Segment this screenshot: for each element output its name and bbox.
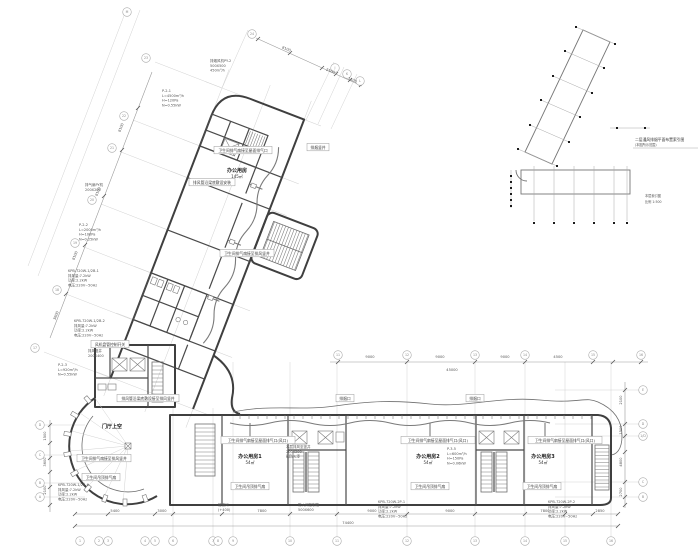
boxed-note: 卫生间吊顶排气扇 (523, 482, 561, 489)
svg-text:(+400): (+400) (218, 508, 231, 512)
boxed-note: 风机盘管控制开关 (91, 340, 129, 347)
core-1 (288, 431, 346, 492)
svg-text:145㎡: 145㎡ (231, 173, 243, 179)
svg-text:M: M (126, 10, 129, 14)
svg-text:5: 5 (154, 539, 156, 543)
svg-text:排风量:7.2kW: 排风量:7.2kW (68, 273, 91, 278)
svg-text:22: 22 (122, 114, 126, 118)
svg-text:KPB-720W-1/2B-2: KPB-720W-1/2B-2 (74, 319, 105, 323)
svg-text:N=0.55kW: N=0.55kW (162, 103, 181, 107)
svg-text:电压:220V~50Hz: 电压:220V~50Hz (74, 332, 103, 337)
svg-text:排风量:7.2kW: 排风量:7.2kW (548, 504, 571, 509)
grid-bubble: C (639, 478, 648, 487)
dimension-text: 4500 (553, 355, 563, 359)
svg-text:L=4500m³/h: L=4500m³/h (162, 94, 184, 98)
grid-bubble: 1 (76, 537, 85, 546)
svg-text:卫生间排气扇接至屋面排气口(风口): 卫生间排气扇接至屋面排气口(风口) (535, 438, 595, 443)
wing-top-core (200, 114, 268, 167)
equipment-label-stack: KPB-720W-1/2B-1排风量:7.2kW功率:2.2kW电压:220V~… (68, 269, 99, 287)
room-label: 办公用房145㎡ (227, 167, 247, 179)
svg-text:54㎡: 54㎡ (538, 459, 547, 465)
svg-text:卫生间吊顶排气扇: 卫生间吊顶排气扇 (235, 484, 266, 489)
grid-bubble: B (639, 493, 648, 502)
equipment-label-stack: P-2-1L=4500m³/hH=120PaN=0.55kW (162, 89, 184, 107)
connector-wall (213, 355, 240, 414)
dimension-text: 5400 (110, 509, 120, 513)
svg-text:电压:220V~50Hz: 电压:220V~50Hz (548, 513, 577, 518)
svg-text:10: 10 (288, 539, 292, 543)
dimension-text: 8100 (118, 122, 125, 133)
dimension-text: 2850 (595, 509, 605, 513)
svg-text:200X200: 200X200 (85, 188, 101, 192)
dimension-text: 4800 (619, 457, 623, 467)
svg-text:管道间: 管道间 (218, 502, 229, 507)
grid-bubble: 8 (214, 537, 223, 546)
svg-text:防火阀控制箱: 防火阀控制箱 (298, 502, 319, 507)
svg-text:15: 15 (591, 353, 595, 357)
equipment-label-stack: 本层排风至竖井200X200刷防火漆 (286, 444, 311, 459)
svg-text:排风量:7.2kW: 排风量:7.2kW (74, 323, 97, 328)
svg-text:54㎡: 54㎡ (423, 459, 432, 465)
svg-text:N=0.25kW: N=0.25kW (79, 237, 98, 241)
svg-text:排烟风机PY-2: 排烟风机PY-2 (210, 58, 231, 63)
svg-text:16: 16 (609, 539, 613, 543)
grid-bubble: 13 (471, 537, 480, 546)
svg-text:E: E (642, 388, 644, 392)
svg-text:排烟口: 排烟口 (339, 396, 351, 401)
boxed-note: 卫生间吊顶排气扇 (411, 482, 449, 489)
dimension-text: 2100 (43, 485, 47, 495)
boxed-note: 卫生间排气扇接至屋面排气口 (214, 146, 272, 153)
svg-text:11: 11 (335, 539, 339, 543)
grid-bubble: 13 (471, 351, 480, 360)
equipment-label-stack: P-3-5L=600m³/hH=150PaN=0.06kW (447, 447, 467, 465)
svg-text:卫生间吊顶排气扇: 卫生间吊顶排气扇 (86, 475, 117, 480)
equipment-label-stack: 管道间(+400) (218, 502, 231, 512)
key-plan: 二层通风排烟平面布置索引图 (本图所示范围) 本层索引图 比例 1:500 (510, 26, 698, 224)
svg-text:21: 21 (110, 146, 114, 150)
svg-text:卫生间排气扇接至排风竖井: 卫生间排气扇接至排风竖井 (81, 456, 127, 461)
dimension-text: 9000 (367, 509, 377, 513)
dimension-text: 3000 (157, 509, 167, 513)
svg-text:L=2000m³/h: L=2000m³/h (79, 228, 101, 232)
svg-text:排烟口: 排烟口 (469, 396, 481, 401)
svg-text:200X200: 200X200 (286, 450, 302, 454)
leader-stack-layer: 排烟风机PY-2500X500450m³/hP-2-1L=4500m³/hH=1… (58, 58, 577, 518)
dimension-text: 74400 (342, 521, 354, 525)
dimension-text: 9000 (365, 355, 375, 359)
svg-text:6: 6 (172, 539, 174, 543)
svg-text:功率:2.2kW: 功率:2.2kW (74, 328, 94, 333)
grid-bubble: 20 (88, 196, 97, 205)
svg-text:电压:220V~50Hz: 电压:220V~50Hz (68, 282, 97, 287)
room-label: 办公用房354㎡ (531, 453, 555, 465)
boxed-note: 卫生间排气扇接至排风竖井 (220, 249, 274, 256)
grid-bubble: E (639, 386, 648, 395)
svg-text:54㎡: 54㎡ (245, 459, 254, 465)
svg-text:卫生间排气扇接至屋面排气口(风口): 卫生间排气扇接至屋面排气口(风口) (228, 438, 288, 443)
room-label: 门厅上空 (102, 423, 122, 430)
svg-text:P-2-2: P-2-2 (79, 223, 88, 227)
grid-bubble: 15 (589, 351, 598, 360)
svg-text:15: 15 (563, 539, 567, 543)
svg-text:KPB-720W-1/2B-1: KPB-720W-1/2B-1 (68, 269, 99, 273)
grid-bubble: 23 (142, 54, 151, 63)
svg-text:本层排风至竖井: 本层排风至竖井 (286, 444, 311, 449)
wing-mid-core (133, 273, 207, 341)
svg-text:风机盘管控制开关: 风机盘管控制开关 (95, 342, 126, 347)
equipment-label-stack: 排风竖井200X400 (88, 348, 104, 358)
grid-bubble: 6 (169, 537, 178, 546)
grid-bubble: 16 (637, 351, 646, 360)
svg-text:KPB-720W-2P-1: KPB-720W-2P-1 (378, 500, 405, 504)
boxed-note: 排烟竖井 (307, 143, 329, 150)
svg-text:卫生间吊顶排气扇: 卫生间吊顶排气扇 (415, 484, 446, 489)
dimension-text: 2100 (619, 395, 623, 405)
equipment-label-stack: 排烟风机PY-2500X500450m³/h (210, 58, 231, 73)
svg-text:卫生间排气扇接至屋面排气口(风口): 卫生间排气扇接至屋面排气口(风口) (408, 438, 468, 443)
core-2 (476, 431, 524, 492)
svg-text:卫生间排气扇接至排风竖井: 卫生间排气扇接至排风竖井 (224, 251, 270, 256)
svg-text:B: B (39, 481, 41, 485)
boxed-note: 卫生间排气扇接至屋面排气口(风口) (528, 436, 602, 443)
equipment-label-stack: KPB-720W-2P-1排风量:7.2kW功率:2.2kW电压:220V~50… (378, 500, 407, 518)
svg-text:20: 20 (90, 198, 94, 202)
grid-bubble: 16 (607, 537, 616, 546)
grid-bubble: 14 (521, 537, 530, 546)
grid-bubble: L (356, 77, 365, 86)
svg-text:19: 19 (73, 241, 77, 245)
svg-text:13: 13 (473, 353, 477, 357)
svg-text:H=150Pa: H=150Pa (447, 457, 463, 461)
svg-text:500X600: 500X600 (298, 508, 314, 512)
grid-bubble: 12 (403, 537, 412, 546)
svg-text:13: 13 (473, 539, 477, 543)
svg-text:18: 18 (55, 288, 59, 292)
room-label: 办公用房154㎡ (238, 453, 262, 465)
svg-text:H=100Pa: H=100Pa (79, 233, 95, 237)
svg-text:L=600m³/h: L=600m³/h (447, 452, 467, 456)
svg-text:H=120Pa: H=120Pa (162, 99, 178, 103)
dimension-text: 7800 (257, 509, 267, 513)
grid-bubble: 21 (108, 144, 117, 153)
svg-text:1: 1 (79, 539, 81, 543)
dimension-text: 9000 (435, 355, 445, 359)
grid-bubble: 19 (71, 239, 80, 248)
svg-text:排风竖井: 排风竖井 (88, 348, 102, 353)
svg-text:9: 9 (232, 539, 234, 543)
svg-text:排风管沿梁底敷设安装: 排风管沿梁底敷设安装 (193, 180, 231, 185)
svg-text:12: 12 (405, 353, 409, 357)
boxed-note: 卫生间吊顶排气扇 (231, 482, 269, 489)
svg-text:14: 14 (523, 353, 527, 357)
grid-bubble: 9 (229, 537, 238, 546)
grid-bubble: 22 (120, 112, 129, 121)
boxed-note: 卫生间排气扇接至排风竖井 (77, 454, 131, 461)
svg-text:排风管沿梁底敷设接至排风竖井: 排风管沿梁底敷设接至排风竖井 (121, 396, 174, 401)
grid-bubble: 15 (561, 537, 570, 546)
svg-text:B: B (642, 495, 644, 499)
svg-text:KPB-720W-1/2B-6: KPB-720W-1/2B-6 (58, 483, 89, 487)
svg-text:卫生间排气扇接至屋面排气口: 卫生间排气扇接至屋面排气口 (218, 148, 268, 153)
svg-text:办公用房1: 办公用房1 (238, 453, 262, 460)
grid-bubble: 5 (151, 537, 160, 546)
grid-bubble: M (123, 8, 132, 17)
svg-text:排烟竖井: 排烟竖井 (310, 145, 325, 150)
svg-text:KPB-720W-2P-2: KPB-720W-2P-2 (548, 500, 575, 504)
grid-bubble: 12 (403, 351, 412, 360)
grid-bubble: 4 (141, 537, 150, 546)
svg-text:P-2-3: P-2-3 (58, 363, 67, 367)
svg-text:功率:2.2kW: 功率:2.2kW (548, 509, 568, 514)
svg-text:L: L (359, 79, 361, 83)
svg-text:刷防火漆: 刷防火漆 (286, 454, 300, 459)
boxed-note: 排烟口 (466, 394, 484, 401)
equipment-label-stack: P-2-3L=920m³/hN=0.55kW (58, 363, 78, 377)
svg-text:11: 11 (336, 353, 340, 357)
dimension-text: 1500 (43, 431, 47, 441)
equipment-label-stack: KPB-720W-1/2B-6排风量:7.2kW功率:2.2kW电压:220V~… (58, 483, 89, 501)
svg-text:17: 17 (33, 346, 37, 350)
svg-text:功率:2.2kW: 功率:2.2kW (58, 492, 78, 497)
svg-text:排风量:7.2kW: 排风量:7.2kW (58, 487, 81, 492)
svg-text:卫生间吊顶排气扇: 卫生间吊顶排气扇 (527, 484, 558, 489)
wing-stair-annex (250, 211, 320, 281)
key-plan-title: 二层通风排烟平面布置索引图 (635, 137, 685, 142)
svg-text:P-2-1: P-2-1 (162, 89, 171, 93)
svg-text:P-3-5: P-3-5 (447, 447, 456, 451)
svg-text:2: 2 (98, 539, 100, 543)
grid-bubble: 1/D (639, 432, 648, 441)
svg-text:功率:2.2kW: 功率:2.2kW (68, 278, 88, 283)
svg-text:N=0.55kW: N=0.55kW (58, 373, 77, 377)
grid-bubble: 3 (104, 537, 113, 546)
svg-text:N=0.06kW: N=0.06kW (447, 461, 466, 465)
room-label: 办公用房254㎡ (416, 453, 440, 465)
grid-bubble: 10 (286, 537, 295, 546)
svg-text:12: 12 (405, 539, 409, 543)
svg-text:450m³/h: 450m³/h (210, 69, 225, 73)
svg-text:电压:220V~50Hz: 电压:220V~50Hz (58, 496, 87, 501)
grid-bubble: D (36, 421, 45, 430)
svg-text:16: 16 (639, 353, 643, 357)
dimension-text: 2700 (619, 487, 623, 497)
svg-text:排风量:7.2kW: 排风量:7.2kW (378, 504, 401, 509)
boxed-note: 排烟口 (336, 394, 354, 401)
dimension-text: 9000 (445, 509, 455, 513)
svg-text:功率:2.2kW: 功率:2.2kW (378, 509, 398, 514)
dimension-text: 1500 (619, 425, 623, 435)
boxed-note: 排风管沿梁底敷设安装 (189, 178, 235, 185)
svg-text:办公用房: 办公用房 (227, 167, 247, 174)
dimension-text: 3600 (43, 457, 47, 467)
equipment-label-stack: KPB-720W-1/2B-2排风量:7.2kW功率:2.2kW电压:220V~… (74, 319, 105, 337)
svg-text:14: 14 (523, 539, 527, 543)
svg-text:4: 4 (144, 539, 146, 543)
boxed-note: 卫生间排气扇接至屋面排气口(风口) (221, 436, 295, 443)
grid-bubble: 11 (334, 351, 343, 360)
dimension-text: 45000 (446, 368, 458, 372)
svg-text:电压:220V~50Hz: 电压:220V~50Hz (378, 513, 407, 518)
equipment-label-stack: 防火阀控制箱500X600 (298, 502, 319, 512)
svg-text:24: 24 (250, 32, 254, 36)
equipment-label-stack: 排气扇PY机200X200 (85, 182, 104, 192)
equipment-label-stack: KPB-720W-2P-2排风量:7.2kW功率:2.2kW电压:220V~50… (548, 500, 577, 518)
grid-bubble: 2 (95, 537, 104, 546)
equipment-label-stack: P-2-2L=2000m³/hH=100PaN=0.25kW (79, 223, 101, 241)
boxed-note: 排风管沿梁底敷设接至排风竖井 (117, 394, 179, 401)
svg-text:8: 8 (217, 539, 219, 543)
key-plan-subtitle: (本图所示范围) (635, 142, 657, 147)
boxed-note: 卫生间吊顶排气扇 (82, 473, 120, 480)
dimension-text: 9000 (500, 355, 510, 359)
grid-bubble: 24 (248, 30, 257, 39)
grid-bubble: 18 (53, 286, 62, 295)
grid-bubble: 17 (31, 344, 40, 353)
svg-text:23: 23 (144, 56, 148, 60)
dimension-chains (48, 37, 648, 528)
key-plan-scale: 比例 1:500 (645, 199, 662, 204)
grid-bubble: 11 (333, 537, 342, 546)
svg-text:500X500: 500X500 (210, 64, 226, 68)
right-stair (595, 445, 609, 490)
svg-text:L=920m³/h: L=920m³/h (58, 368, 78, 372)
svg-text:排气扇PY机: 排气扇PY机 (85, 182, 104, 187)
key-plan-caption: 本层索引图 (645, 193, 661, 198)
svg-text:3: 3 (107, 539, 109, 543)
boxed-note: 卫生间排气扇接至屋面排气口(风口) (401, 436, 475, 443)
grid-bubble: D (639, 420, 648, 429)
svg-text:1/D: 1/D (640, 434, 646, 438)
svg-text:办公用房3: 办公用房3 (531, 453, 555, 460)
svg-text:200X400: 200X400 (88, 354, 104, 358)
svg-text:门厅上空: 门厅上空 (102, 423, 122, 430)
svg-text:办公用房2: 办公用房2 (416, 453, 440, 460)
grid-bubble: 14 (521, 351, 530, 360)
floor-plan-canvas: 二层通风排烟平面布置索引图 (本图所示范围) 本层索引图 比例 1:500 12… (0, 0, 700, 558)
dimension-text: 8100 (72, 250, 79, 261)
